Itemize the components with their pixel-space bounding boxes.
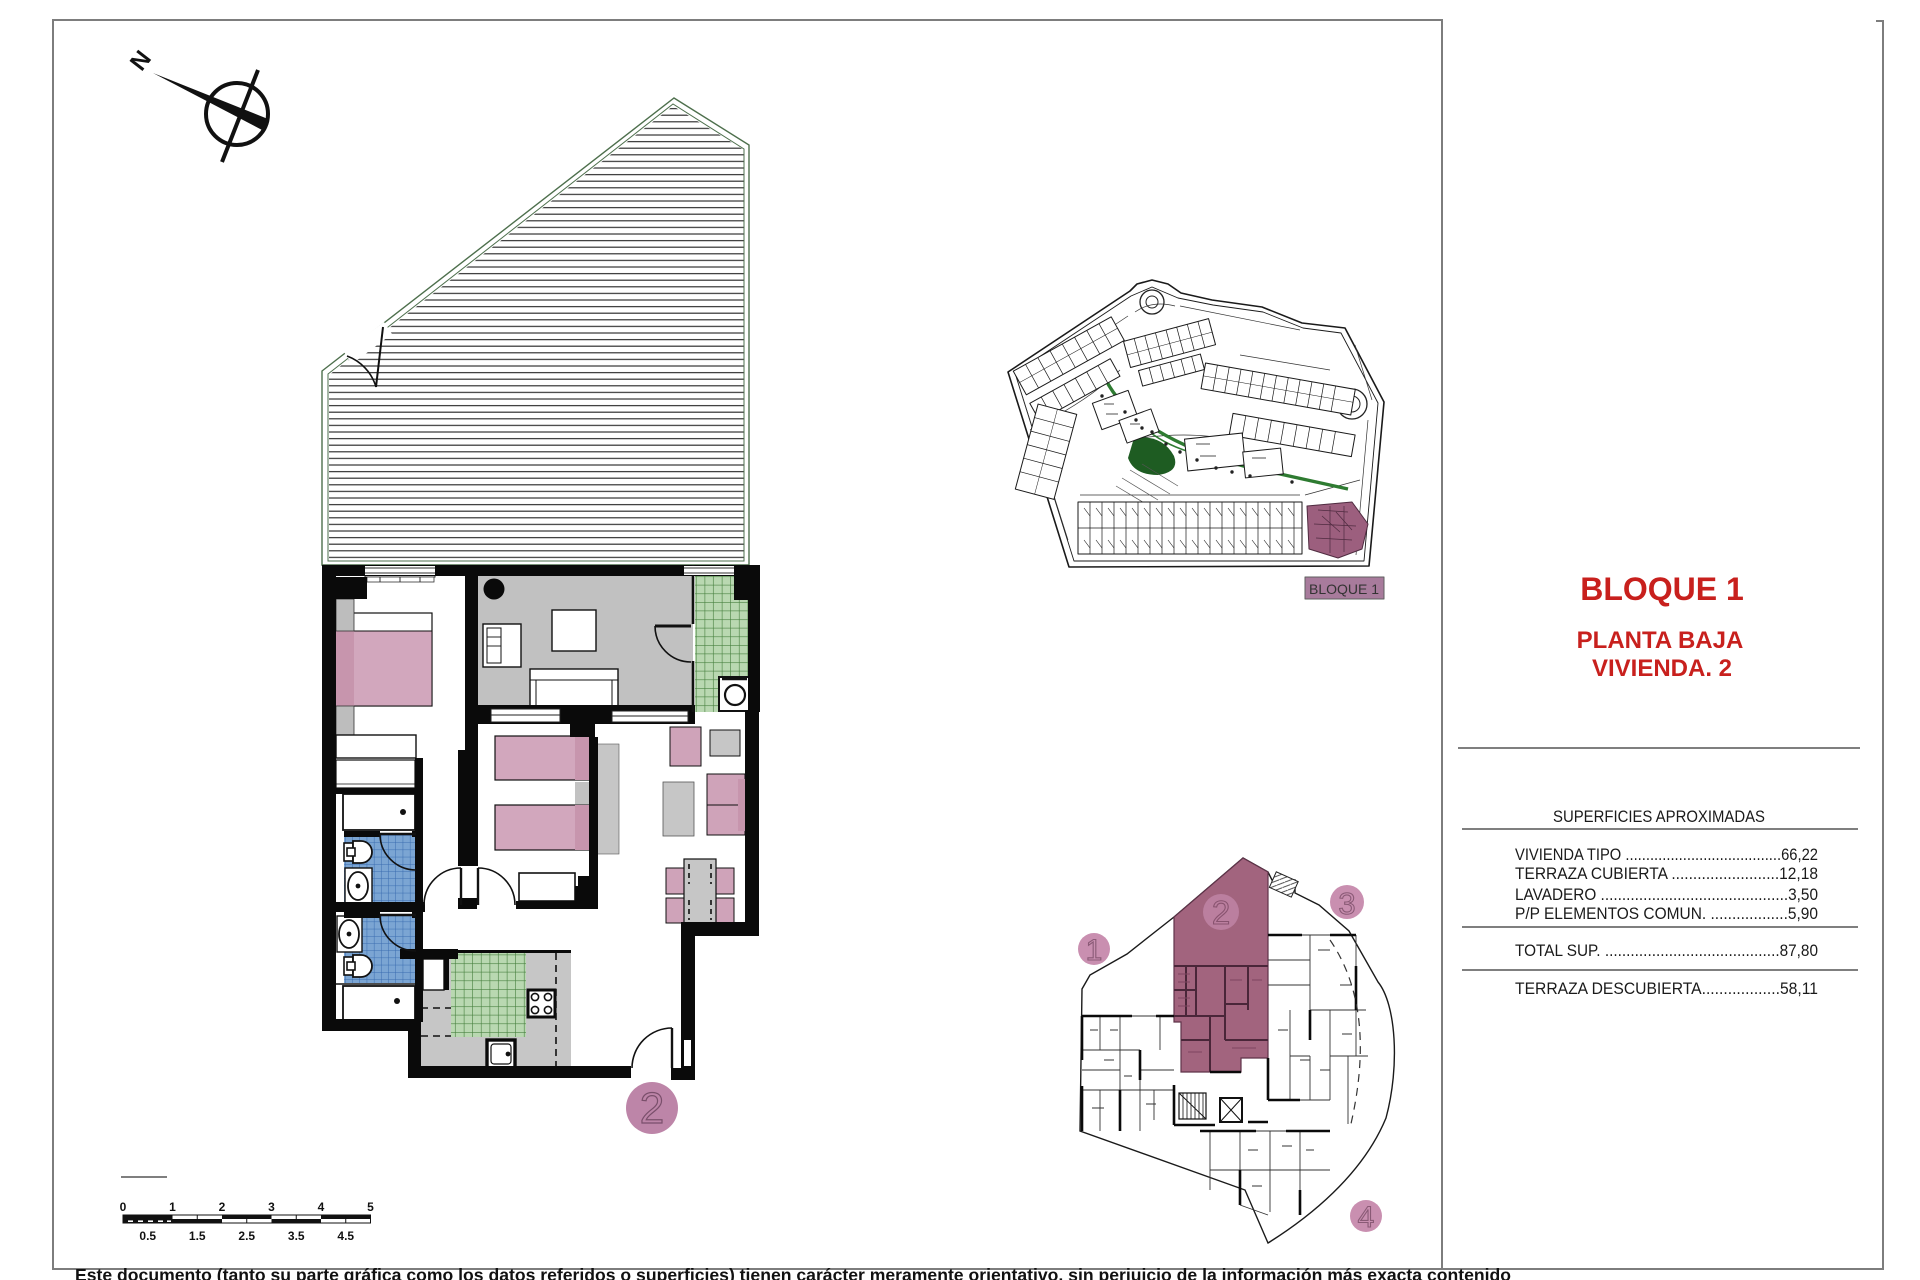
svg-text:4: 4 — [318, 1200, 325, 1214]
svg-text:5: 5 — [367, 1200, 374, 1214]
svg-text:0: 0 — [120, 1200, 127, 1214]
svg-text:4: 4 — [1358, 1201, 1375, 1234]
svg-text:2: 2 — [219, 1200, 226, 1214]
svg-text:1.5: 1.5 — [189, 1229, 206, 1243]
svg-text:3.5: 3.5 — [288, 1229, 305, 1243]
svg-text:VIVIENDA TIPO ................: VIVIENDA TIPO ..........................… — [1515, 845, 1818, 864]
svg-text:BLOQUE 1: BLOQUE 1 — [1580, 571, 1744, 607]
svg-text:2: 2 — [640, 1084, 664, 1133]
svg-text:1: 1 — [169, 1200, 176, 1214]
svg-text:0.5: 0.5 — [139, 1229, 156, 1243]
svg-text:2.5: 2.5 — [238, 1229, 255, 1243]
svg-text:BLOQUE 1: BLOQUE 1 — [1309, 581, 1379, 597]
svg-text:3: 3 — [1338, 886, 1355, 921]
svg-text:TERRAZA CUBIERTA .............: TERRAZA CUBIERTA .......................… — [1515, 864, 1818, 883]
svg-text:1: 1 — [1086, 934, 1103, 967]
svg-text:2: 2 — [1212, 894, 1230, 931]
svg-text:PLANTA BAJA: PLANTA BAJA — [1577, 627, 1744, 654]
svg-text:VIVIENDA. 2: VIVIENDA. 2 — [1592, 655, 1732, 682]
svg-text:3: 3 — [268, 1200, 275, 1214]
svg-text:4.5: 4.5 — [337, 1229, 354, 1243]
svg-text:TERRAZA DESCUBIERTA...........: TERRAZA DESCUBIERTA..................58,… — [1515, 979, 1818, 998]
svg-text:SUPERFICIES APROXIMADAS: SUPERFICIES APROXIMADAS — [1553, 807, 1765, 826]
svg-text:P/P ELEMENTOS COMUN. .........: P/P ELEMENTOS COMUN. ..................5… — [1515, 904, 1818, 923]
svg-text:LAVADERO .....................: LAVADERO ...............................… — [1515, 885, 1818, 904]
svg-text:TOTAL SUP. ...................: TOTAL SUP. .............................… — [1515, 941, 1818, 960]
svg-text:Este documento (tanto su parte: Este documento (tanto su parte gráfica c… — [75, 1265, 1511, 1280]
